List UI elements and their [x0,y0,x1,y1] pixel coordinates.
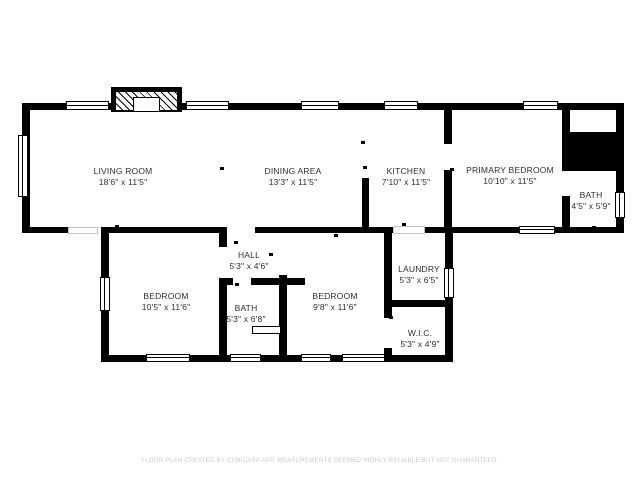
wall [425,227,519,233]
room-dimensions: 5'3" x 4'6" [229,261,268,272]
door-marker [269,253,273,256]
wall [444,110,452,144]
door-marker [592,226,596,229]
room-label-bedroom-right: BEDROOM 9'8" x 11'6" [312,291,357,313]
window-glyph [146,354,190,362]
room-label-laundry: LAUNDRY 5'3" x 6'5" [398,264,440,286]
window-glyph [444,268,454,298]
window-glyph [523,101,558,110]
wall [562,196,570,233]
door-marker [235,283,239,286]
wall [445,233,453,268]
door-marker [363,166,367,169]
room-name: BEDROOM [312,291,357,302]
door-marker [115,225,119,228]
window-glyph [342,354,385,362]
wall [362,178,369,233]
room-dimensions: 7'10" x 11'5" [382,177,431,188]
room-dimensions: 10'5" x 11'6" [142,302,191,313]
door-opening [68,227,98,234]
room-name: PRIMARY BEDROOM [466,165,554,176]
door-marker [234,241,238,244]
room-label-dining-area: DINING AREA 13'3" x 11'5" [265,166,322,188]
door-marker [220,167,224,170]
room-name: BATH [226,303,265,314]
wall [219,233,227,247]
room-name: BEDROOM [142,291,191,302]
footer-disclaimer: FLOOR PLAN CREATED BY CUBICASA APP. MEAS… [0,458,640,464]
room-label-kitchen: KITCHEN 7'10" x 11'5" [382,166,431,188]
window-glyph [66,101,109,110]
room-dimensions: 5'3" x 4'9" [400,339,439,350]
wall [331,355,342,362]
room-label-living-room: LIVING ROOM 18'6" x 11'5" [94,166,153,188]
door-marker [402,223,406,226]
floor-plan: LIVING ROOM 18'6" x 11'5" DINING AREA 13… [0,0,640,480]
room-label-bath-hall: BATH 5'3" x 6'8" [226,303,265,325]
room-dimensions: 5'3" x 6'8" [226,314,265,325]
wall [219,278,233,285]
wall [562,110,570,134]
room-name: LAUNDRY [398,264,440,275]
window-glyph [230,354,261,362]
wall [384,300,453,307]
door-marker [334,234,338,237]
closet-block [562,132,617,171]
door-marker [450,168,454,171]
room-name: BATH [571,190,610,201]
room-label-wic: W.I.C. 5'3" x 4'9" [400,328,439,350]
wall [22,227,68,233]
room-name: HALL [229,250,268,261]
room-name: DINING AREA [265,166,322,177]
wall [101,355,146,362]
room-label-hall: HALL 5'3" x 4'6" [229,250,268,272]
wall [384,348,392,362]
door-marker [361,141,365,144]
wall [385,355,453,362]
window-glyph [384,101,418,110]
window-glyph [100,277,110,311]
room-dimensions: 10'10" x 11'5" [466,176,554,187]
wall [101,227,109,277]
window-glyph [18,135,28,197]
window-glyph [186,101,229,110]
window-glyph [301,354,331,362]
door-opening [393,226,425,234]
wall [255,227,393,233]
chimney-firebox [133,97,160,112]
room-label-bedroom-left: BEDROOM 10'5" x 11'6" [142,291,191,313]
bath-vanity [252,326,281,334]
room-name: LIVING ROOM [94,166,153,177]
room-dimensions: 4'5" x 5'9" [571,201,610,212]
window-glyph [615,192,625,218]
wall [444,170,452,233]
room-label-bath-primary: BATH 4'5" x 5'9" [571,190,610,212]
window-glyph [519,226,555,234]
room-name: KITCHEN [382,166,431,177]
room-label-primary-bedroom: PRIMARY BEDROOM 10'10" x 11'5" [466,165,554,187]
door-marker [389,316,393,319]
room-dimensions: 5'3" x 6'5" [398,275,440,286]
wall [103,227,227,233]
wall [279,275,287,362]
wall [287,278,305,285]
window-glyph [301,101,339,110]
wall [445,297,453,362]
room-name: W.I.C. [400,328,439,339]
room-dimensions: 18'6" x 11'5" [94,177,153,188]
room-dimensions: 13'3" x 11'5" [265,177,322,188]
room-dimensions: 9'8" x 11'6" [312,302,357,313]
